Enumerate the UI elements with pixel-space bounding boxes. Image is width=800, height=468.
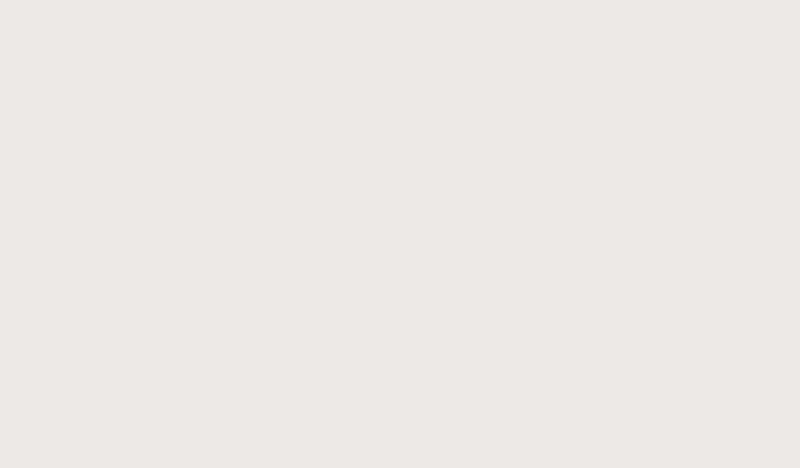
floorplan-render (0, 0, 800, 468)
background (0, 0, 800, 468)
floorplan-3d-scene (0, 0, 800, 468)
